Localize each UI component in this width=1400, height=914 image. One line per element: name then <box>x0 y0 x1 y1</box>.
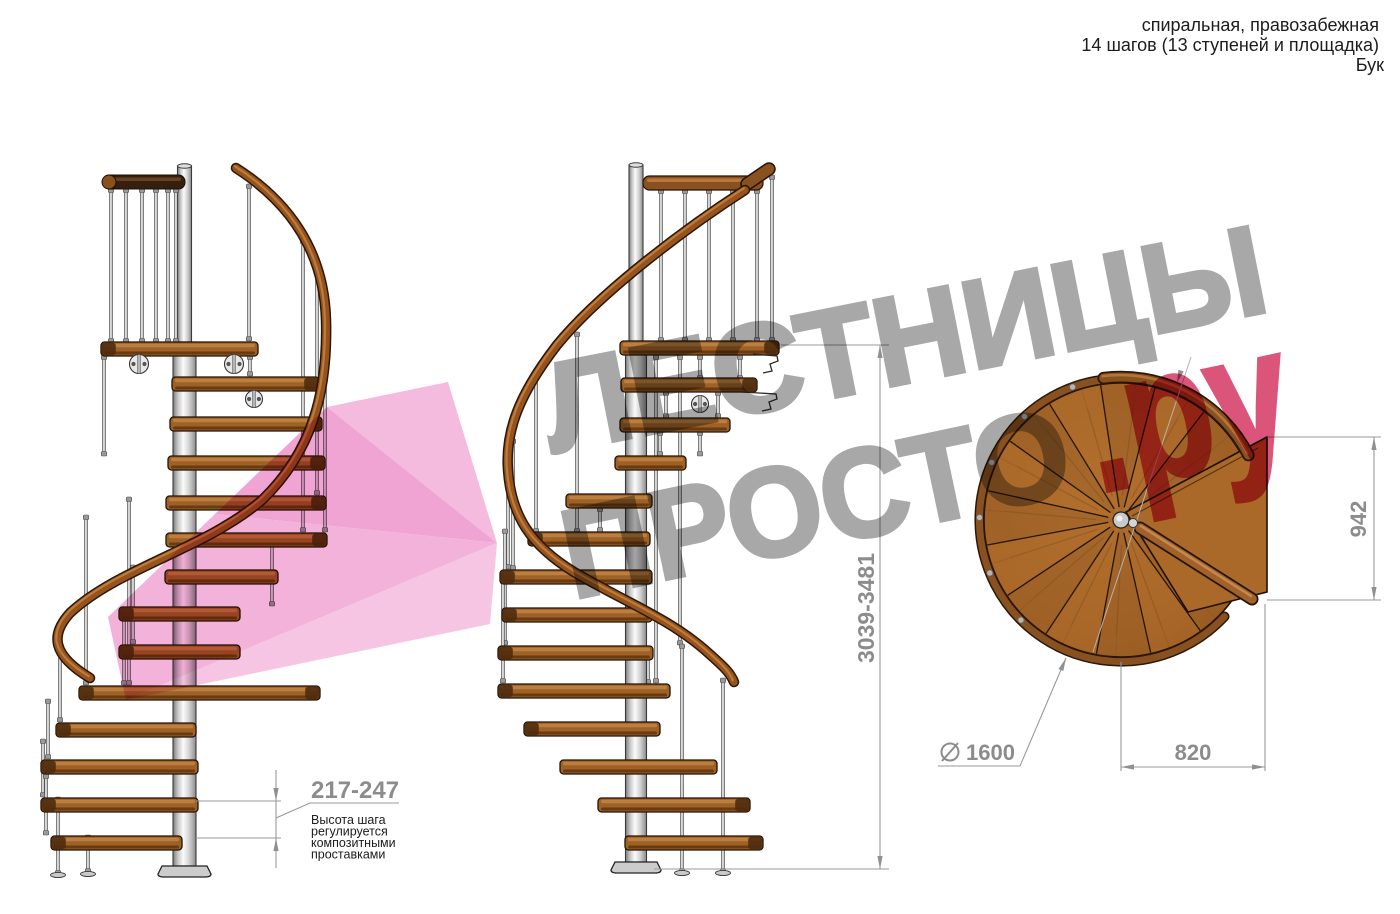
svg-text:3039-3481: 3039-3481 <box>853 553 879 663</box>
svg-text:942: 942 <box>1346 501 1371 538</box>
svg-text:217-247: 217-247 <box>311 777 399 804</box>
svg-text:.ру: .ру <box>1063 288 1308 533</box>
svg-text:820: 820 <box>1175 740 1212 765</box>
svg-text:1600: 1600 <box>966 740 1015 765</box>
